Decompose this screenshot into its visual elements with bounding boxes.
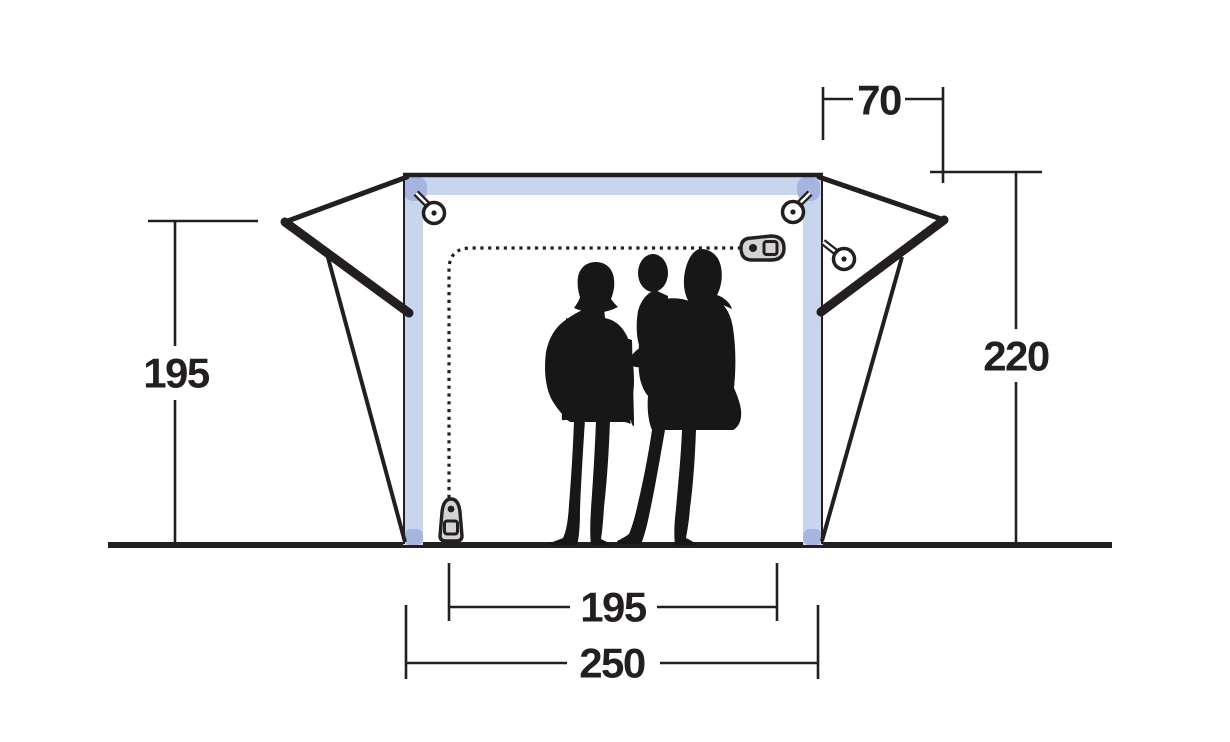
frame-right-pole [803,176,823,545]
right-wing-bottom-edge [821,220,944,312]
dimension-label-total-height: 220 [983,333,1049,380]
guy-rope-ring-icon [823,242,855,270]
dimension-label-inner-width: 195 [580,584,647,631]
left-awning-wing [285,177,409,542]
left-wing-bottom-edge [285,222,409,313]
dimension-label-wing-depth: 70 [857,77,901,124]
diagram-canvas: 70 220 195 195 250 [0,0,1230,742]
dimension-wing-depth: 70 [823,77,943,184]
right-wing-top-edge [819,177,944,220]
frame-left-pole [403,176,423,545]
dimension-side-height: 195 [143,221,258,545]
dimension-label-side-height: 195 [143,350,210,397]
dimension-label-outer-width: 250 [579,640,645,687]
dimension-inner-width: 195 [449,563,777,631]
zipper-pull-icon [741,236,784,260]
left-wing-top-edge [285,177,407,222]
frame-top-beam [403,176,823,195]
dimension-total-height: 220 [930,172,1049,548]
frame-base-left [404,529,423,545]
zipper-pull-icon [440,499,462,541]
right-awning-wing [819,177,944,541]
tent-dimension-diagram: 70 220 195 195 250 [0,0,1230,742]
frame-base-right [803,529,822,545]
family-silhouette [545,249,741,545]
